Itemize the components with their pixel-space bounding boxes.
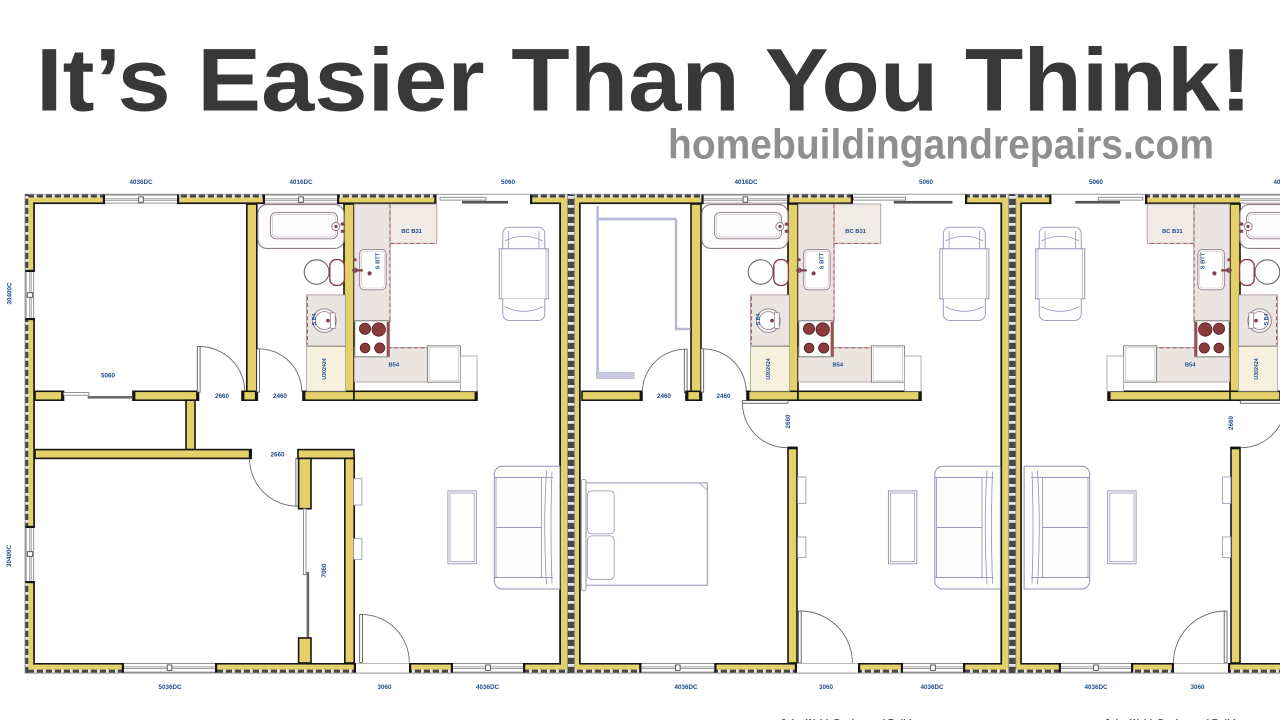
svg-text:4036DC: 4036DC	[920, 684, 944, 691]
svg-text:30400C: 30400C	[6, 282, 13, 305]
svg-text:S B4: S B4	[312, 314, 318, 326]
svg-text:5060: 5060	[1089, 179, 1104, 186]
svg-text:4036DC: 4036DC	[476, 684, 500, 691]
svg-text:3060: 3060	[377, 684, 392, 691]
svg-text:4036DC: 4036DC	[674, 684, 698, 691]
svg-text:5060: 5060	[919, 179, 934, 186]
svg-text:2660: 2660	[215, 393, 230, 400]
svg-text:S B4: S B4	[756, 314, 762, 326]
svg-text:2660: 2660	[1228, 416, 1235, 431]
svg-text:7060: 7060	[321, 563, 328, 578]
svg-text:5036DC: 5036DC	[158, 684, 182, 691]
svg-text:3060: 3060	[1190, 684, 1205, 691]
svg-text:S BTT: S BTT	[820, 252, 826, 269]
svg-text:homebuildingandrepairs.com: homebuildingandrepairs.com	[668, 121, 1214, 168]
svg-text:3060: 3060	[819, 684, 834, 691]
svg-text:B54: B54	[832, 363, 843, 369]
svg-text:40: 40	[1273, 179, 1280, 186]
svg-text:BC B31: BC B31	[845, 229, 866, 235]
svg-text:S BTT: S BTT	[376, 252, 382, 269]
svg-text:4036DC: 4036DC	[1084, 684, 1108, 691]
svg-text:30400C: 30400C	[6, 545, 13, 568]
svg-text:BC B31: BC B31	[401, 229, 422, 235]
svg-text:2660: 2660	[785, 414, 792, 429]
svg-text:B54: B54	[1185, 363, 1196, 369]
svg-text:4016DC: 4016DC	[289, 179, 313, 186]
svg-text:It’s Easier Than You Think!: It’s Easier Than You Think!	[36, 30, 1252, 130]
svg-text:5060: 5060	[501, 179, 516, 186]
svg-text:S B4: S B4	[1264, 314, 1270, 326]
svg-text:BC B31: BC B31	[1162, 229, 1183, 235]
svg-text:S BTT: S BTT	[1200, 252, 1206, 269]
svg-text:2660: 2660	[270, 452, 285, 459]
svg-text:2460: 2460	[716, 393, 731, 400]
svg-text:2460: 2460	[657, 393, 672, 400]
svg-text:5060: 5060	[101, 373, 116, 380]
svg-text:2460: 2460	[273, 393, 288, 400]
svg-text:U302424: U302424	[322, 358, 328, 380]
svg-text:4036DC: 4036DC	[129, 179, 153, 186]
svg-text:U302424: U302424	[766, 358, 772, 380]
svg-text:U302424: U302424	[1254, 358, 1260, 380]
svg-text:B54: B54	[388, 363, 399, 369]
svg-text:4016DC: 4016DC	[734, 179, 758, 186]
